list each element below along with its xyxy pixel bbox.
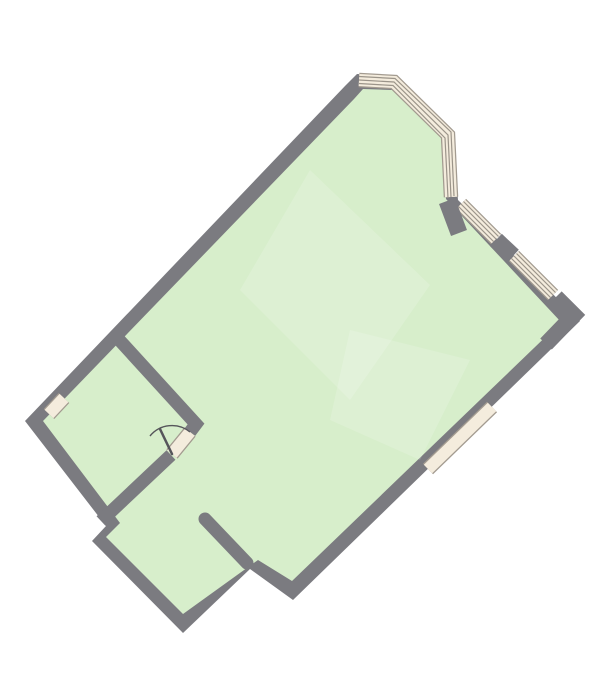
wall-pier xyxy=(496,240,513,256)
floor-plan xyxy=(0,0,605,700)
wall-pier xyxy=(447,201,459,233)
floor-plan-canvas xyxy=(0,0,605,700)
floor-area xyxy=(43,89,561,614)
